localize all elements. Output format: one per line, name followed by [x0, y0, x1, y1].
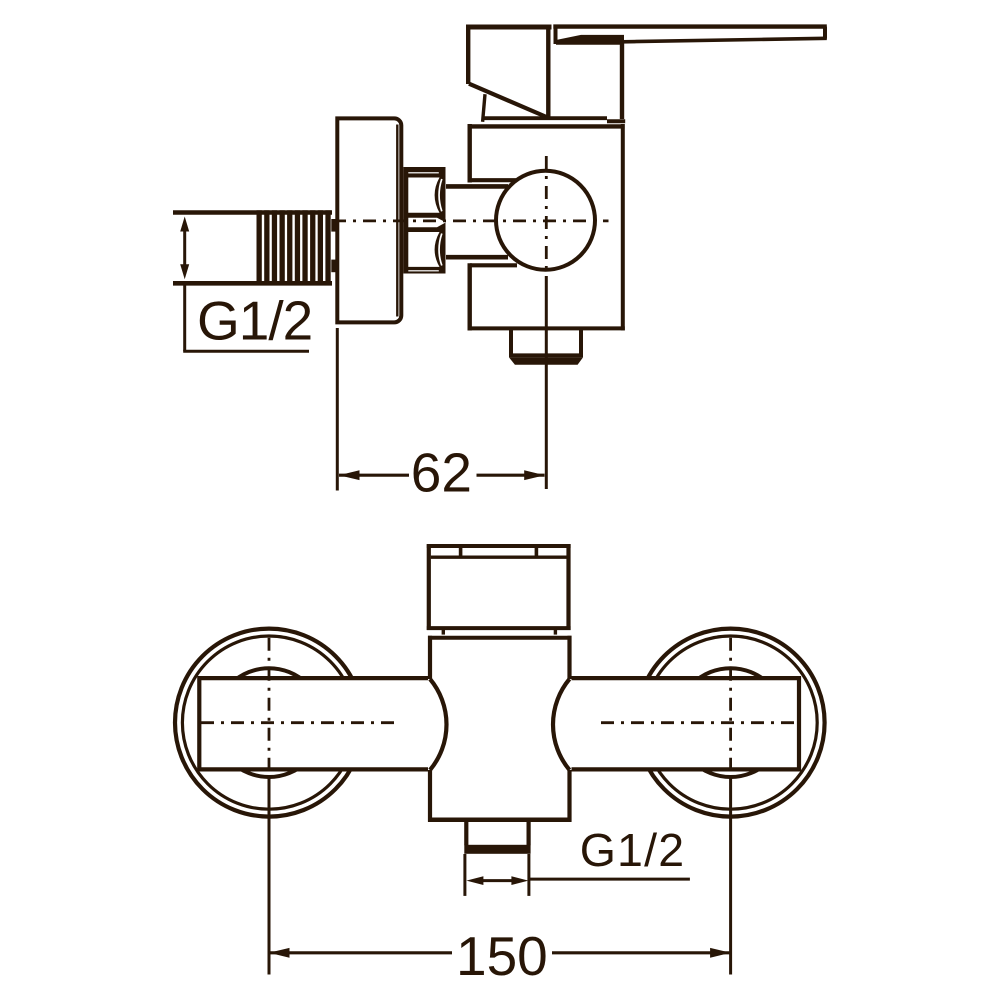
svg-text:G1/2: G1/2 [580, 824, 686, 876]
svg-text:150: 150 [456, 925, 548, 987]
svg-text:G1/2: G1/2 [197, 290, 312, 352]
svg-text:62: 62 [411, 442, 472, 504]
